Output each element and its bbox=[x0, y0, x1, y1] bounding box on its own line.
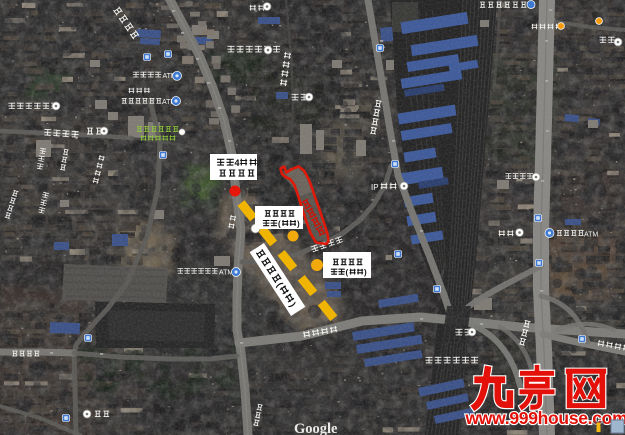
svg-text:(: ( bbox=[278, 219, 281, 228]
svg-text:): ) bbox=[364, 268, 367, 277]
svg-text:IP: IP bbox=[371, 183, 379, 192]
svg-text:): ) bbox=[297, 219, 300, 228]
svg-text:4: 4 bbox=[235, 158, 240, 168]
svg-text:(: ( bbox=[346, 268, 349, 277]
svg-text:Google: Google bbox=[294, 421, 338, 435]
svg-text:ATM: ATM bbox=[584, 232, 598, 239]
